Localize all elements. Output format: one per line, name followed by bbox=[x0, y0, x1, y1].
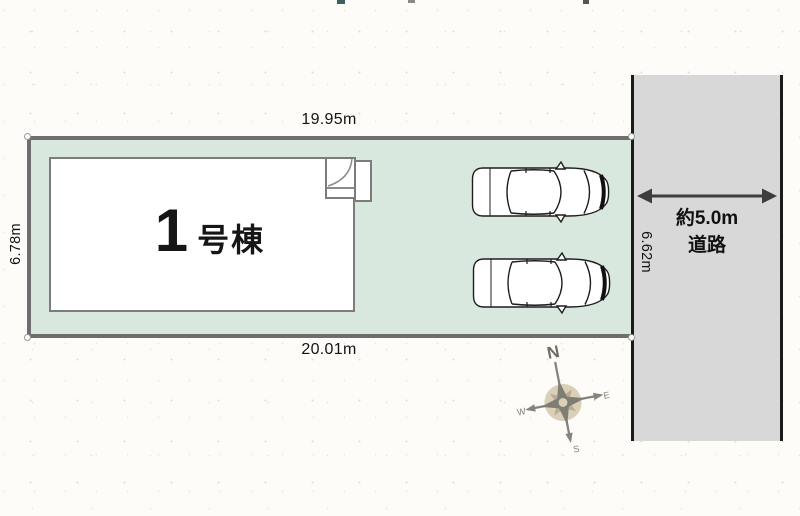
building-suffix: 号棟 bbox=[197, 215, 265, 261]
compass-south-label: S bbox=[572, 444, 580, 455]
lot-corner-marker bbox=[628, 133, 635, 140]
entrance-door-icon bbox=[324, 156, 374, 204]
car-icon bbox=[467, 251, 617, 315]
cropped-text-fragment bbox=[408, 0, 415, 3]
dimension-right-label: 6.62m bbox=[638, 217, 654, 287]
lot-corner-marker bbox=[24, 334, 31, 341]
dimension-left-label: 6.78m bbox=[8, 209, 24, 279]
compass-east-label: E bbox=[603, 390, 611, 401]
compass-west-label: W bbox=[516, 406, 527, 418]
dimension-bottom-label: 20.01m bbox=[27, 341, 631, 359]
car-icon bbox=[466, 160, 616, 224]
site-plan: 約5.0m 道路 1 号棟 bbox=[0, 0, 800, 516]
building-label: 1 号棟 bbox=[95, 188, 325, 274]
cropped-text-fragment bbox=[583, 0, 589, 4]
lot-corner-marker bbox=[628, 334, 635, 341]
road-width-label: 約5.0m bbox=[634, 205, 780, 232]
building-number: 1 bbox=[155, 201, 188, 261]
lot-corner-marker bbox=[24, 133, 31, 140]
cropped-text-fragment bbox=[337, 0, 345, 4]
dimension-top-label: 19.95m bbox=[27, 111, 631, 129]
road-type-label: 道路 bbox=[634, 232, 780, 259]
